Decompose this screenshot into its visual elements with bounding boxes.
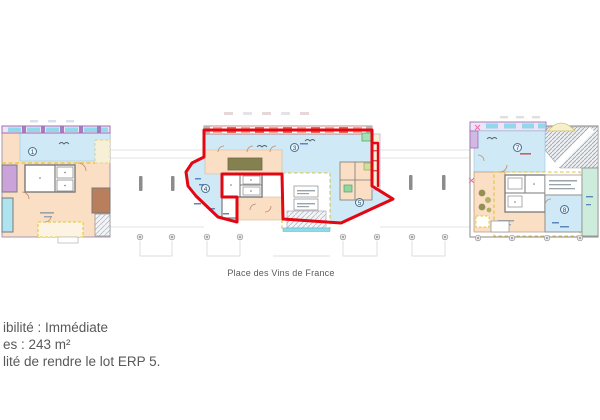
note-erp: lité de rendre le lot ERP 5. [3,354,160,371]
zone-badge-1: 1 [28,147,37,156]
note-availability: ibilité : Immédiate [3,320,160,337]
zone-badge-8: 8 [560,205,569,214]
street-label: Place des Vins de France [196,268,366,278]
zone-badge-3: 3 [290,143,299,152]
floor-plan-page: 1 3 4 5 7 8 Place des Vins de France ibi… [0,0,600,420]
note-surface: es : 243 m² [3,337,160,354]
right-building [469,122,598,237]
zone-badge-7: 7 [513,143,522,152]
notes-block: ibilité : Immédiate es : 243 m² lité de … [3,320,160,370]
zone-badge-5: 5 [355,198,364,207]
zone-badge-4: 4 [201,184,210,193]
left-building [2,126,110,243]
center-building [186,126,393,232]
dimension-marks [30,112,540,123]
